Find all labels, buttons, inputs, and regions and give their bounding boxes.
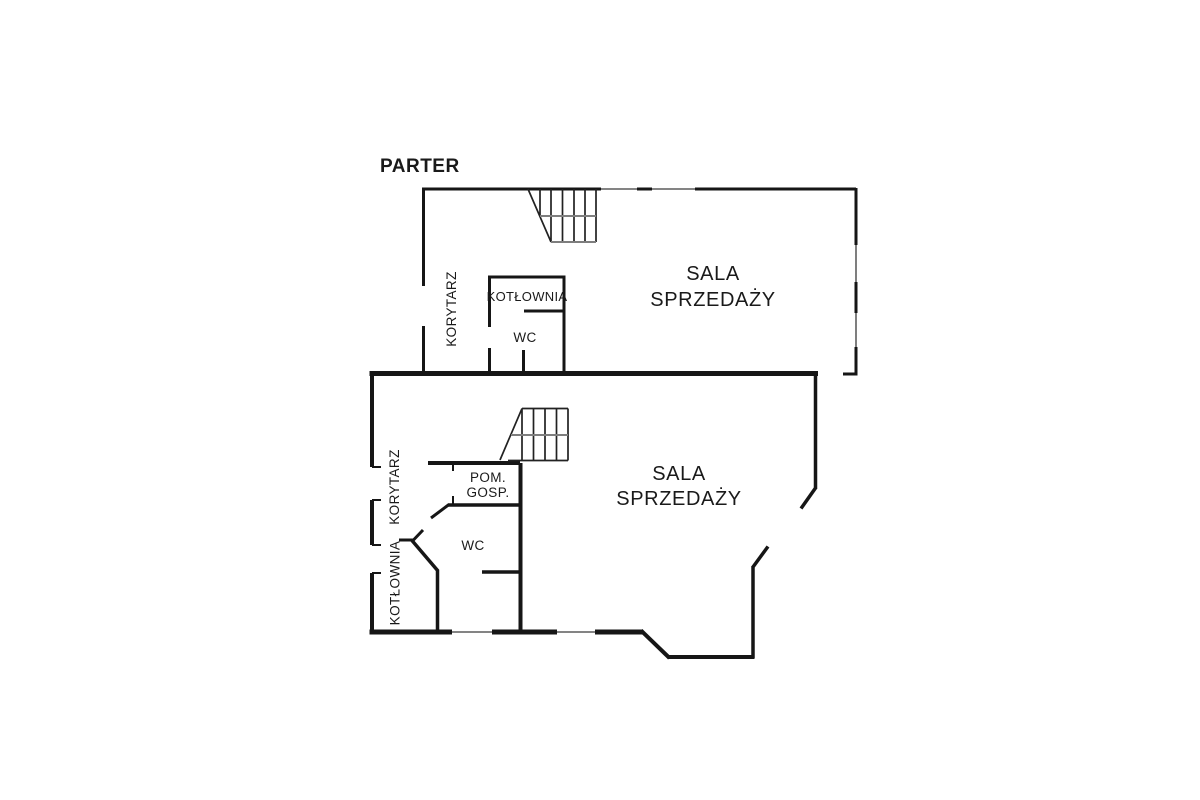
pom-gosp-label-line2: GOSP. <box>466 485 509 500</box>
upper-section: KORYTARZ KOTŁOWNIA WC SALA SPRZEDAŻY <box>422 188 858 376</box>
floor-title: PARTER <box>380 156 460 177</box>
pom-gosp-label-line1: POM. <box>470 470 506 485</box>
upper-korytarz-label: KORYTARZ <box>444 271 459 346</box>
floor-plan-page: KORYTARZ KOTŁOWNIA WC SALA SPRZEDAŻY <box>0 0 1200 800</box>
lower-section: KORYTARZ KOTŁOWNIA POM. GOSP. WC SALA SP… <box>370 374 819 659</box>
lower-wc-label: WC <box>461 538 484 553</box>
upper-stairs <box>528 189 596 242</box>
lower-stairs <box>500 409 568 461</box>
upper-sala-label-line1: SALA <box>686 263 740 285</box>
lower-sala-label-line2: SPRZEDAŻY <box>616 487 741 510</box>
lower-kotlownia-walls <box>412 541 438 633</box>
upper-sala-label-line2: SPRZEDAŻY <box>650 288 775 311</box>
pom-gosp-door-leaf <box>431 505 449 519</box>
upper-outer-walls <box>422 188 858 376</box>
lower-sala-label-line1: SALA <box>652 463 706 485</box>
lower-right-walls <box>753 375 816 658</box>
floor-plan-canvas: KORYTARZ KOTŁOWNIA WC SALA SPRZEDAŻY <box>0 0 1200 800</box>
upper-wc-label: WC <box>513 330 536 345</box>
lower-bottom-recess-walls <box>641 631 755 659</box>
lower-kotlownia-label: KOTŁOWNIA <box>388 541 403 626</box>
lower-korytarz-label: KORYTARZ <box>387 449 402 524</box>
lower-kotlownia-door <box>399 530 423 541</box>
upper-kotlownia-label: KOTŁOWNIA <box>487 289 568 304</box>
